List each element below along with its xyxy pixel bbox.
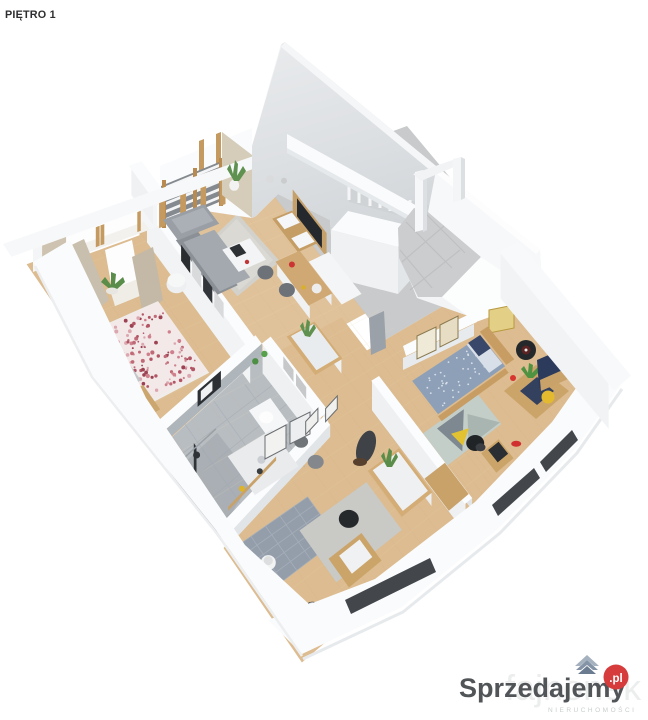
svg-text:.pl: .pl [609, 673, 622, 685]
svg-text:NIERUCHOMOŚCI: NIERUCHOMOŚCI [548, 705, 636, 714]
svg-text:PIĘTRO 1: PIĘTRO 1 [5, 9, 56, 21]
svg-text:Sprzedajemy: Sprzedajemy [459, 673, 626, 703]
